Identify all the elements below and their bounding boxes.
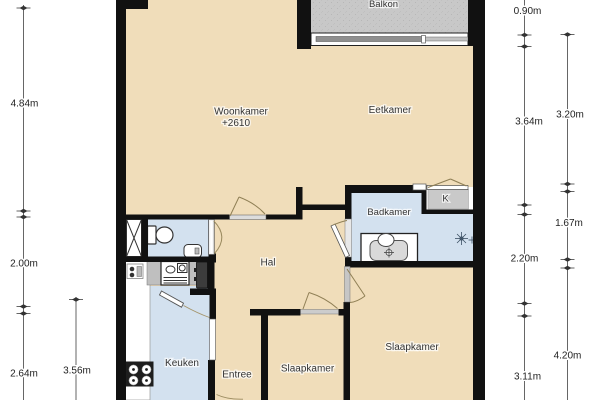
svg-text:Slaapkamer: Slaapkamer xyxy=(385,342,439,353)
svg-text:Entree: Entree xyxy=(222,370,252,381)
svg-text:3.64m: 3.64m xyxy=(515,117,543,128)
svg-text:K: K xyxy=(442,194,449,205)
svg-text:Slaapkamer: Slaapkamer xyxy=(281,364,335,375)
svg-text:Eetkamer: Eetkamer xyxy=(369,105,412,116)
svg-text:Balkon: Balkon xyxy=(369,0,398,10)
svg-text:4.20m: 4.20m xyxy=(554,351,582,362)
svg-text:Keuken: Keuken xyxy=(165,358,199,369)
svg-text:3.11m: 3.11m xyxy=(514,372,541,383)
svg-text:Badkamer: Badkamer xyxy=(367,207,410,218)
svg-text:Hal: Hal xyxy=(260,258,275,269)
svg-text:3.20m: 3.20m xyxy=(556,110,584,121)
svg-text:+2610: +2610 xyxy=(222,118,251,129)
svg-text:1.67m: 1.67m xyxy=(555,218,583,229)
svg-text:3.56m: 3.56m xyxy=(63,366,91,377)
svg-text:2.20m: 2.20m xyxy=(511,254,539,265)
svg-text:0.90m: 0.90m xyxy=(514,6,542,17)
svg-text:2.64m: 2.64m xyxy=(10,369,38,380)
svg-text:Woonkamer: Woonkamer xyxy=(214,107,268,118)
svg-text:4.84m: 4.84m xyxy=(11,99,39,110)
svg-text:2.00m: 2.00m xyxy=(10,259,38,270)
